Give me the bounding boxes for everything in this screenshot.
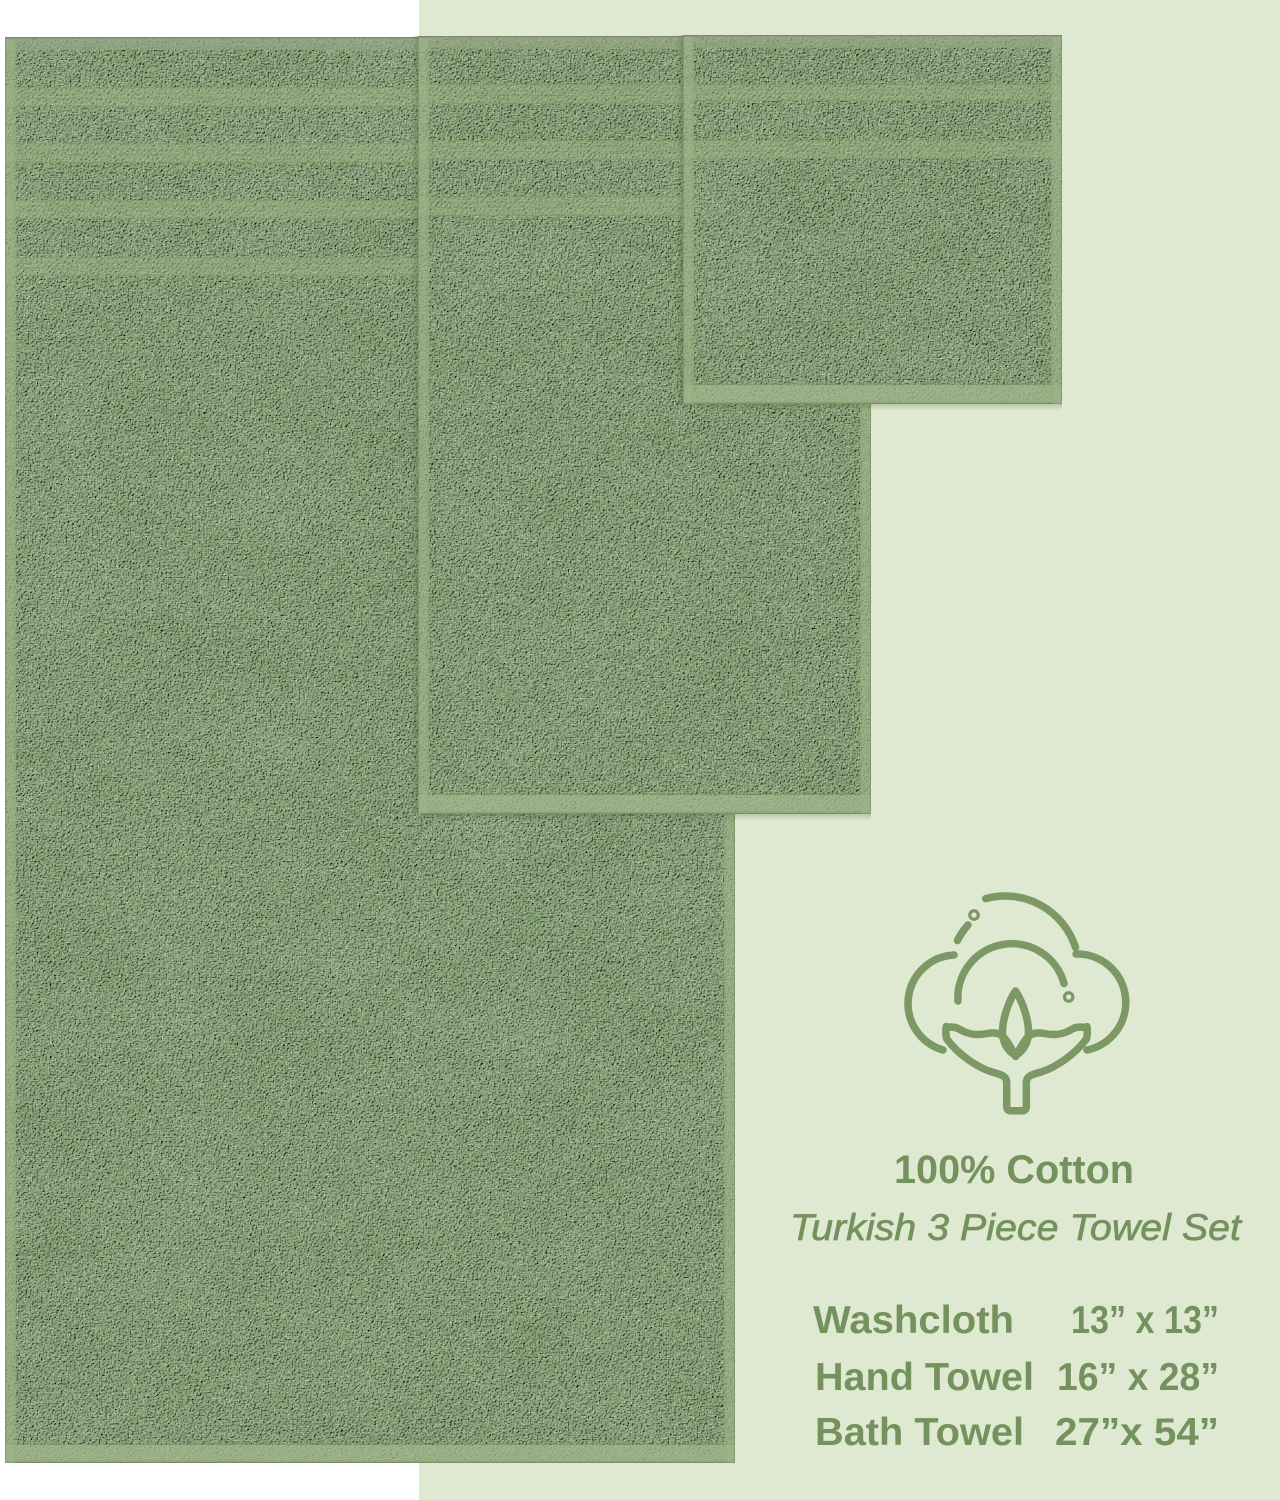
svg-text:Bath Towel: Bath Towel: [815, 1411, 1024, 1454]
svg-text:Hand Towel: Hand Towel: [815, 1356, 1034, 1399]
svg-text:Washcloth: Washcloth: [813, 1299, 1014, 1342]
svg-text:13” x 13”: 13” x 13”: [1071, 1299, 1219, 1342]
svg-text:16” x 28”: 16” x 28”: [1057, 1356, 1219, 1399]
svg-text:Turkish 3 Piece Towel Set: Turkish 3 Piece Towel Set: [790, 1206, 1243, 1248]
svg-text:100% Cotton: 100% Cotton: [894, 1148, 1134, 1192]
svg-text:27”x 54”: 27”x 54”: [1055, 1411, 1219, 1454]
